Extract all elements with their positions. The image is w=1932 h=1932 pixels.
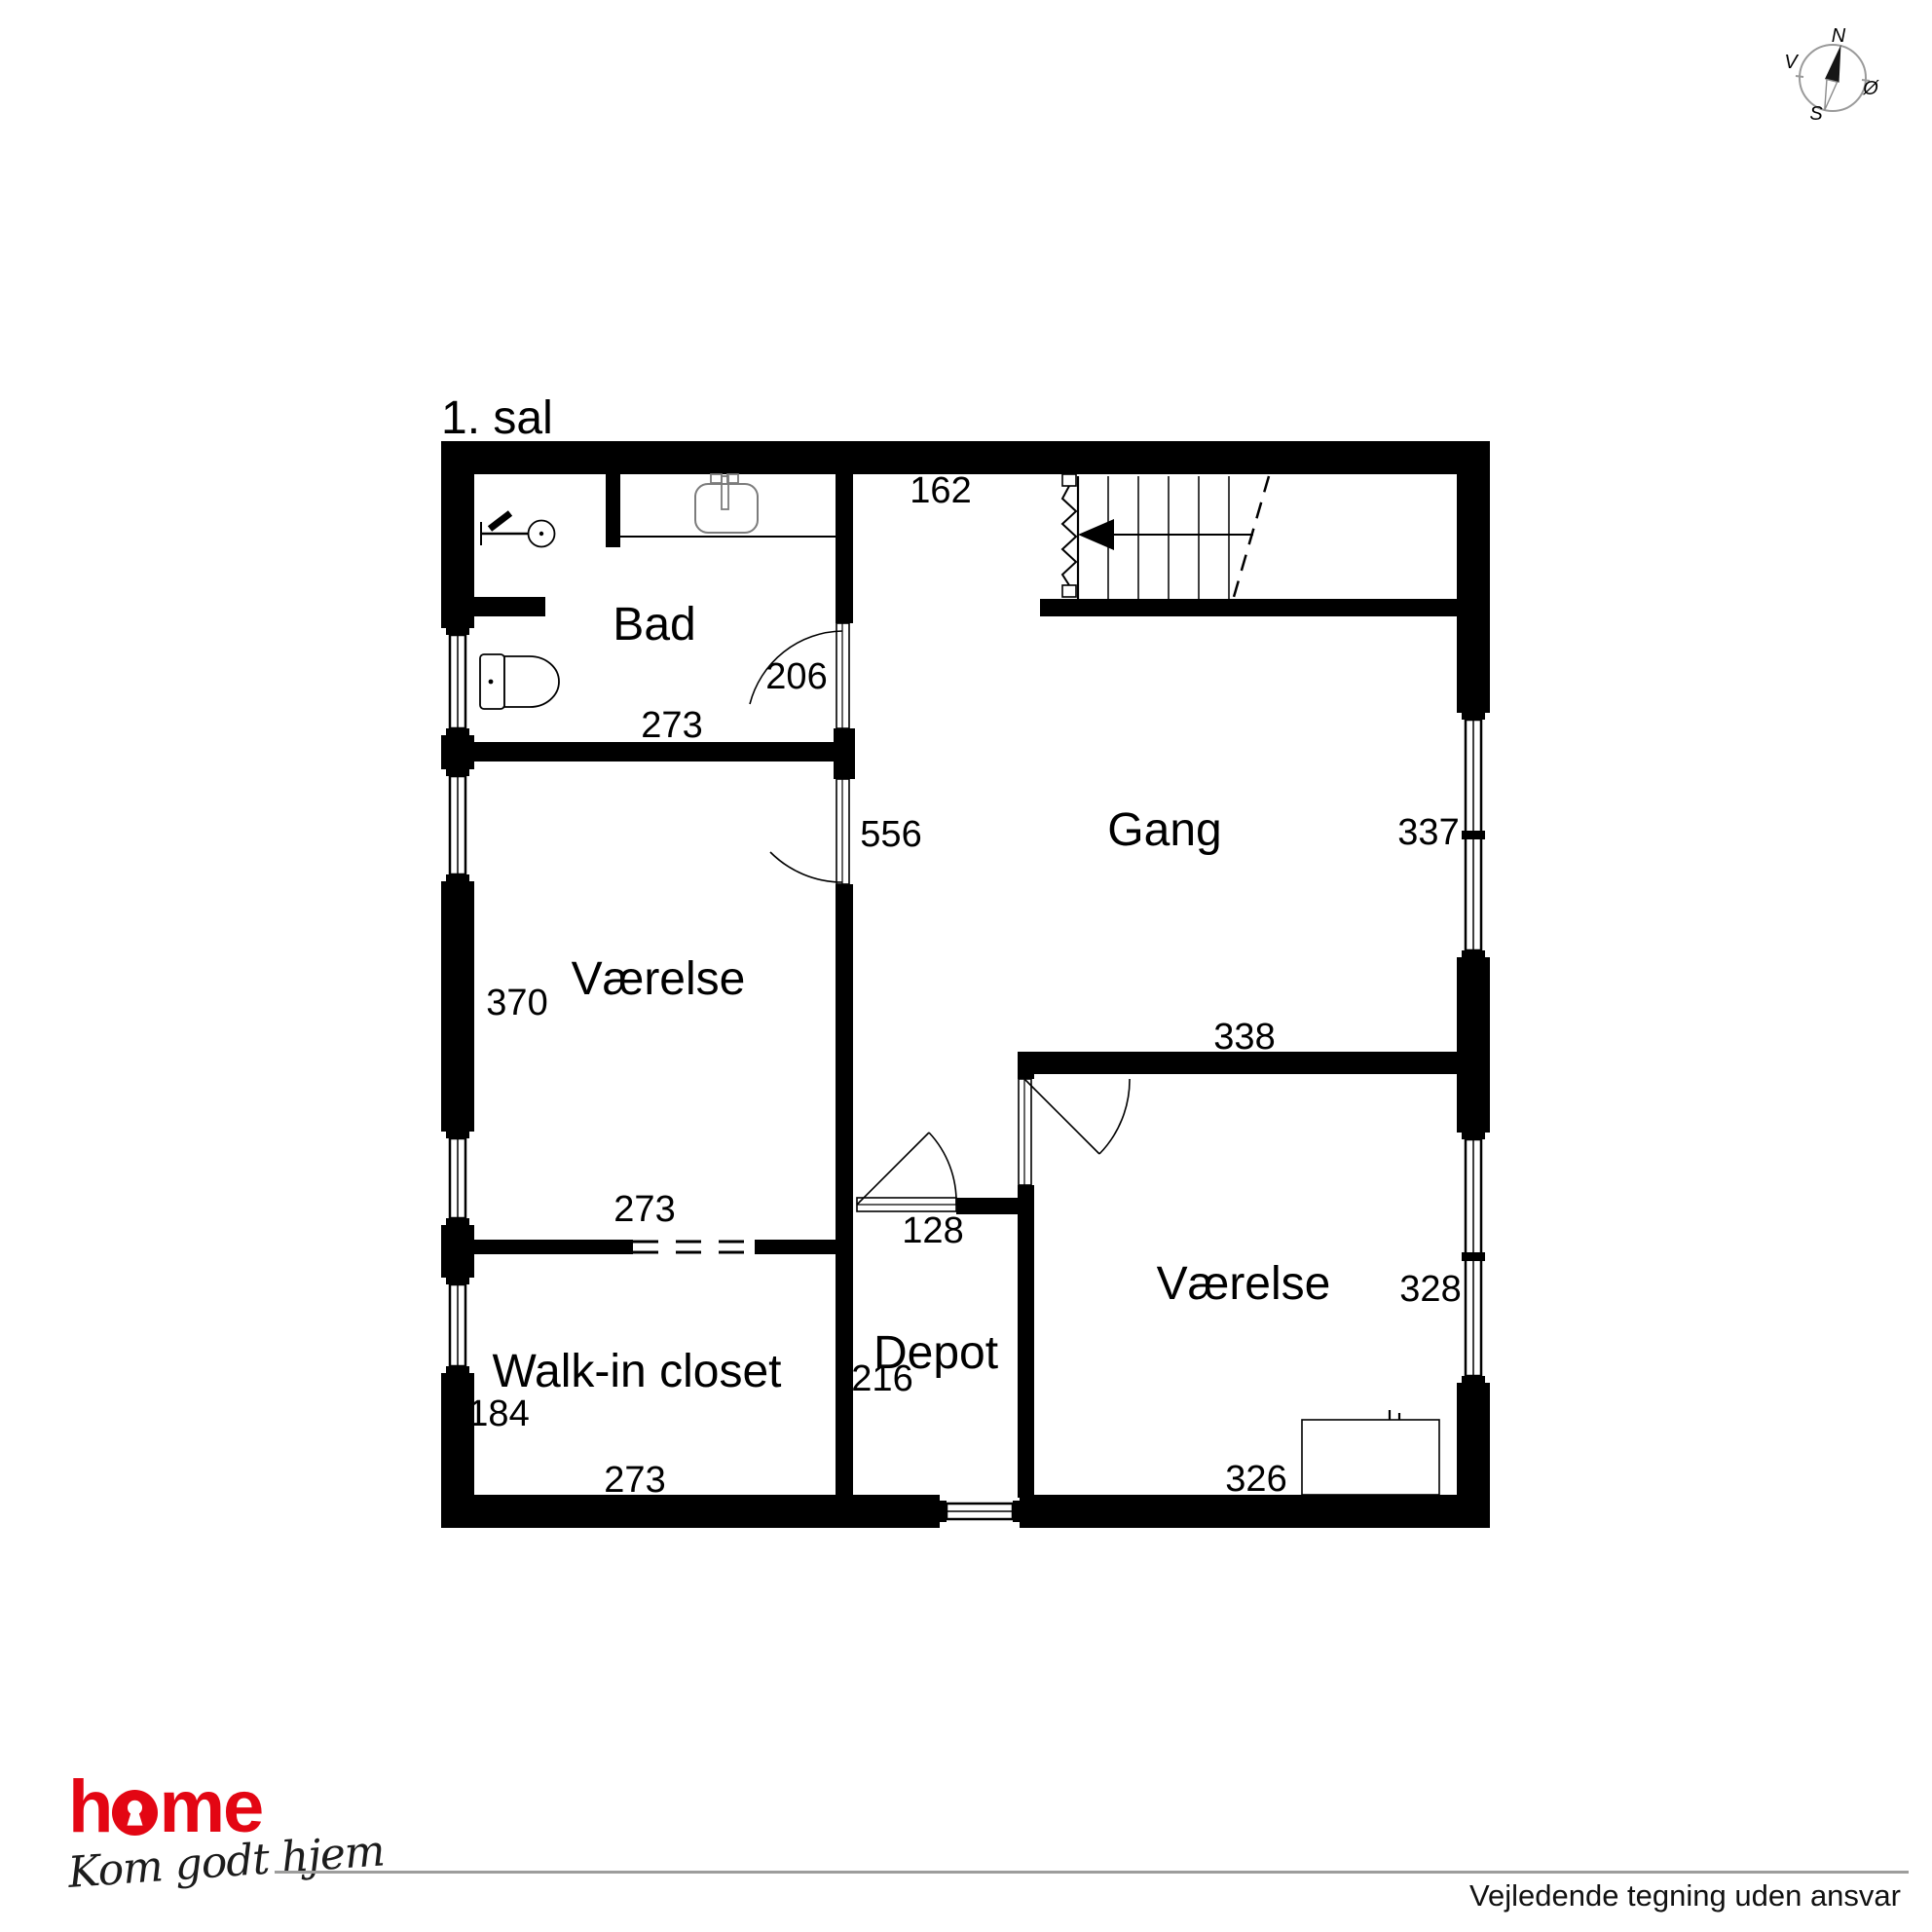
- window-vaerelse-right-east: [1462, 1133, 1485, 1383]
- label-room-walk-in-closet: Walk-in closet: [493, 1346, 782, 1397]
- brand-text-prefix: h: [68, 1770, 111, 1844]
- sink-icon: [695, 474, 758, 533]
- wall-vaerelse-right-west: [1018, 1052, 1034, 1079]
- wall-left: [441, 735, 474, 769]
- stair-handrail-post: [1062, 474, 1076, 486]
- wall-left: [441, 881, 474, 1132]
- stair-break-zigzag: [1062, 486, 1076, 585]
- label-room-vaerelse-right: Værelse: [1157, 1258, 1331, 1310]
- closet-opening-dashed: [633, 1242, 755, 1252]
- wall-closet-north: [474, 1240, 633, 1254]
- label-room-vaerelse-left: Værelse: [572, 953, 746, 1005]
- wall-left: [441, 1225, 474, 1278]
- floor-plan: 1. sal: [0, 0, 1932, 1932]
- dim-closet-height: 184: [467, 1393, 529, 1434]
- wall-shower-stub: [474, 597, 545, 616]
- home-logo: hme Kom godt hjem: [68, 1770, 385, 1898]
- dim-depot-height: 216: [851, 1358, 912, 1399]
- window-bad-west: [446, 628, 469, 735]
- wall-shower-divider: [606, 474, 620, 547]
- shower-icon: [481, 513, 555, 547]
- stair-direction-arrow: [1078, 519, 1114, 550]
- label-room-bad: Bad: [613, 599, 695, 650]
- dresser: [1302, 1420, 1439, 1495]
- window-vaerelse-left-west-2: [446, 1132, 469, 1225]
- dim-vaerelse-right-top: 338: [1213, 1017, 1275, 1058]
- footer-disclaimer: Vejledende tegning uden ansvar: [1469, 1878, 1901, 1913]
- compass-rose: N V Ø S: [1776, 19, 1893, 136]
- dim-vaerelse-right-bottom: 326: [1225, 1459, 1286, 1500]
- compass-needle-icon: [1817, 43, 1847, 112]
- wall-vaerelse-right-west: [1018, 1185, 1034, 1498]
- furniture: [1302, 1410, 1439, 1495]
- wall-closet-north: [755, 1240, 836, 1254]
- floorplan-page: 1. sal: [0, 0, 1932, 1932]
- wall-central: [836, 884, 853, 1495]
- window-gang-east: [1462, 713, 1485, 957]
- wall-right: [1457, 957, 1490, 1133]
- window-vaerelse-left-west-1: [446, 769, 469, 881]
- footer-divider: [275, 1871, 1909, 1874]
- wall-top: [441, 441, 1490, 474]
- stair-handrail-post: [1062, 585, 1076, 597]
- dim-depot-door: 128: [902, 1210, 963, 1251]
- wall-central: [834, 728, 855, 779]
- floor-title: 1. sal: [441, 392, 553, 444]
- wall-bottom: [441, 1495, 940, 1528]
- room-labels: Bad Gang Værelse Walk-in closet Depot Væ…: [493, 599, 1331, 1397]
- dim-vaerelse-left-door: 556: [860, 814, 921, 855]
- door-depot: [857, 1133, 956, 1211]
- compass-label-south: S: [1809, 103, 1823, 125]
- doors: [750, 623, 1130, 1211]
- wall-bottom: [1020, 1495, 1490, 1528]
- toilet-icon: [480, 654, 559, 709]
- keyhole-icon: [112, 1790, 158, 1836]
- dim-closet-top: 273: [613, 1189, 675, 1230]
- compass-label-west: V: [1784, 52, 1799, 73]
- staircase: [1062, 474, 1269, 599]
- stair-break-dashed: [1234, 476, 1269, 597]
- dim-vaerelse-left-height: 370: [486, 983, 547, 1023]
- dim-bad-width: 273: [641, 705, 702, 746]
- compass-label-east: Ø: [1862, 78, 1879, 99]
- wall-stair-south: [1040, 599, 1457, 616]
- stair-treads: [1108, 476, 1229, 599]
- dim-closet-width: 273: [604, 1460, 665, 1501]
- door-vaerelse-left: [770, 779, 849, 884]
- wall-central: [836, 474, 853, 623]
- label-room-gang: Gang: [1107, 804, 1221, 856]
- wall-depot-north: [956, 1198, 1020, 1214]
- dim-gang-top: 162: [910, 470, 971, 511]
- dim-gang-width: 337: [1397, 812, 1459, 853]
- compass-label-north: N: [1832, 25, 1846, 47]
- dim-vaerelse-right-width: 328: [1399, 1269, 1461, 1310]
- wall-left: [441, 441, 474, 628]
- dim-bad-door: 206: [765, 656, 827, 697]
- window-closet-west: [446, 1278, 469, 1373]
- brand-text-suffix: me: [159, 1770, 262, 1844]
- door-vaerelse-right: [1019, 1079, 1130, 1185]
- wall-right: [1457, 441, 1490, 713]
- window-depot-south: [940, 1501, 1020, 1522]
